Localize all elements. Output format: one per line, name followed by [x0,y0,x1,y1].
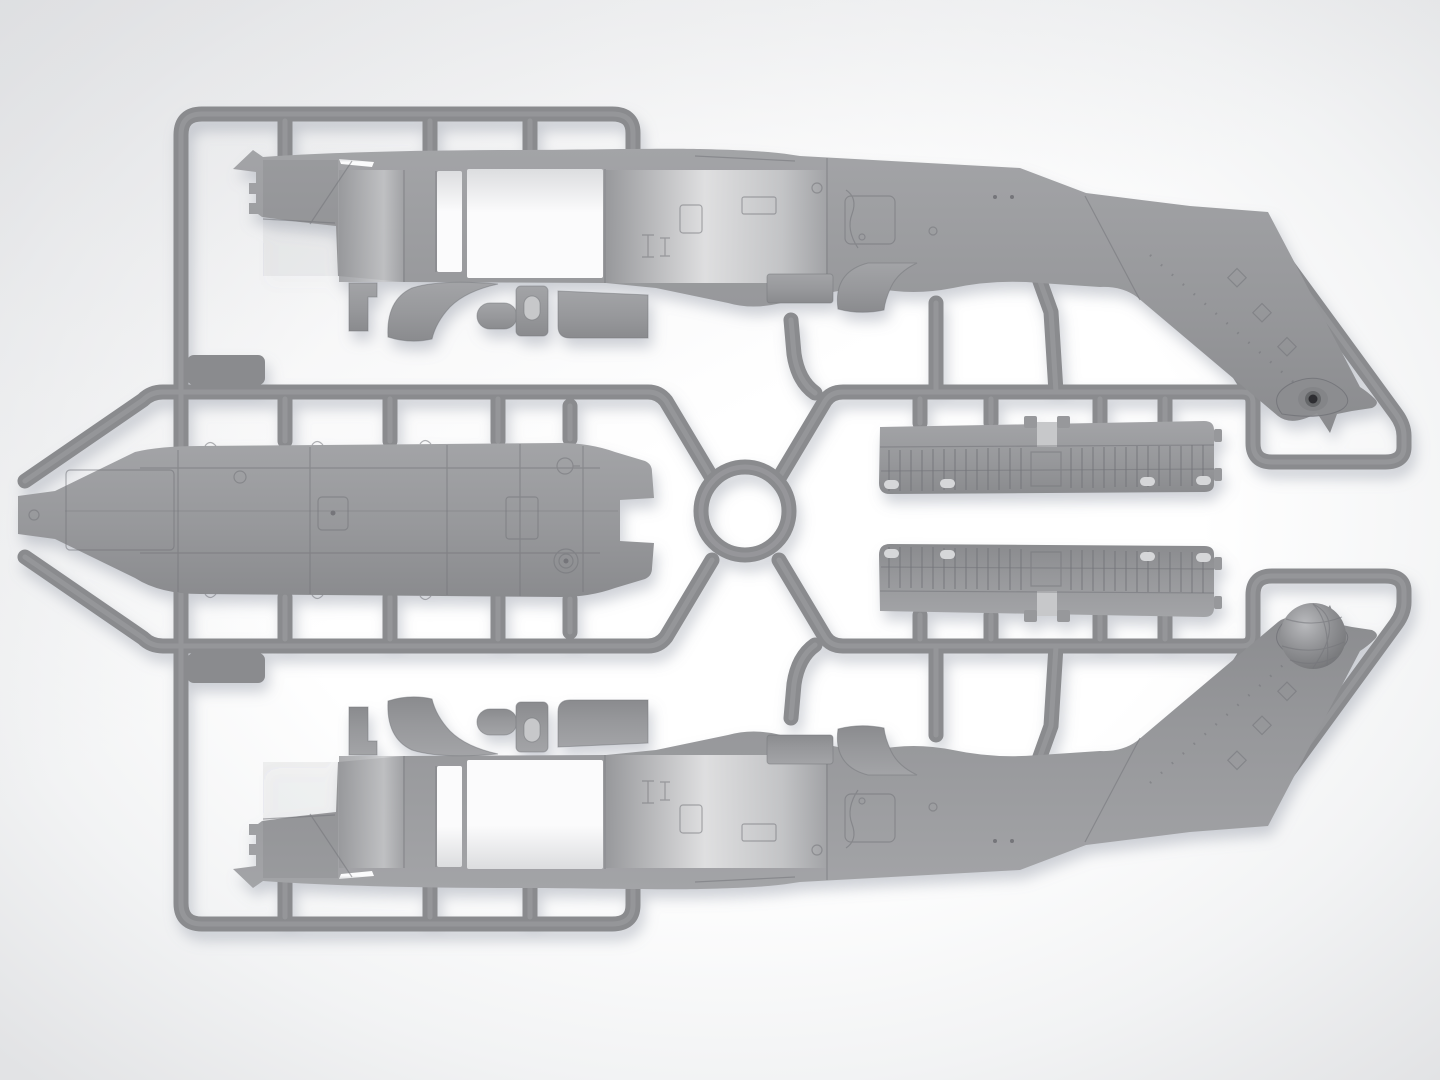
vented-box-part [767,274,833,303]
gate-plate [187,355,265,385]
sprue-render [0,0,1440,1080]
render-stage [0,0,1440,1080]
door-window [524,296,540,320]
rivet [993,195,997,199]
oval-pad-part [477,303,517,329]
floor-dot [331,511,336,516]
sensor-ball-body [1280,603,1346,669]
edge-tab [1214,429,1222,442]
shelf-part [558,291,648,338]
nose-shade [263,160,338,276]
joint-tab [1057,416,1070,428]
sensor-ball [1280,603,1346,669]
window-opening [437,171,462,272]
cabin-interior-lit [606,170,826,283]
edge-tab [1214,468,1222,481]
rivet [1010,195,1014,199]
roof-panel-upper [879,416,1222,494]
cockpit-interior [339,170,403,282]
cargo-door-opening [467,169,603,278]
joint-tab [1024,416,1037,428]
floor-dot [564,559,569,564]
joint-recess [1037,422,1057,447]
